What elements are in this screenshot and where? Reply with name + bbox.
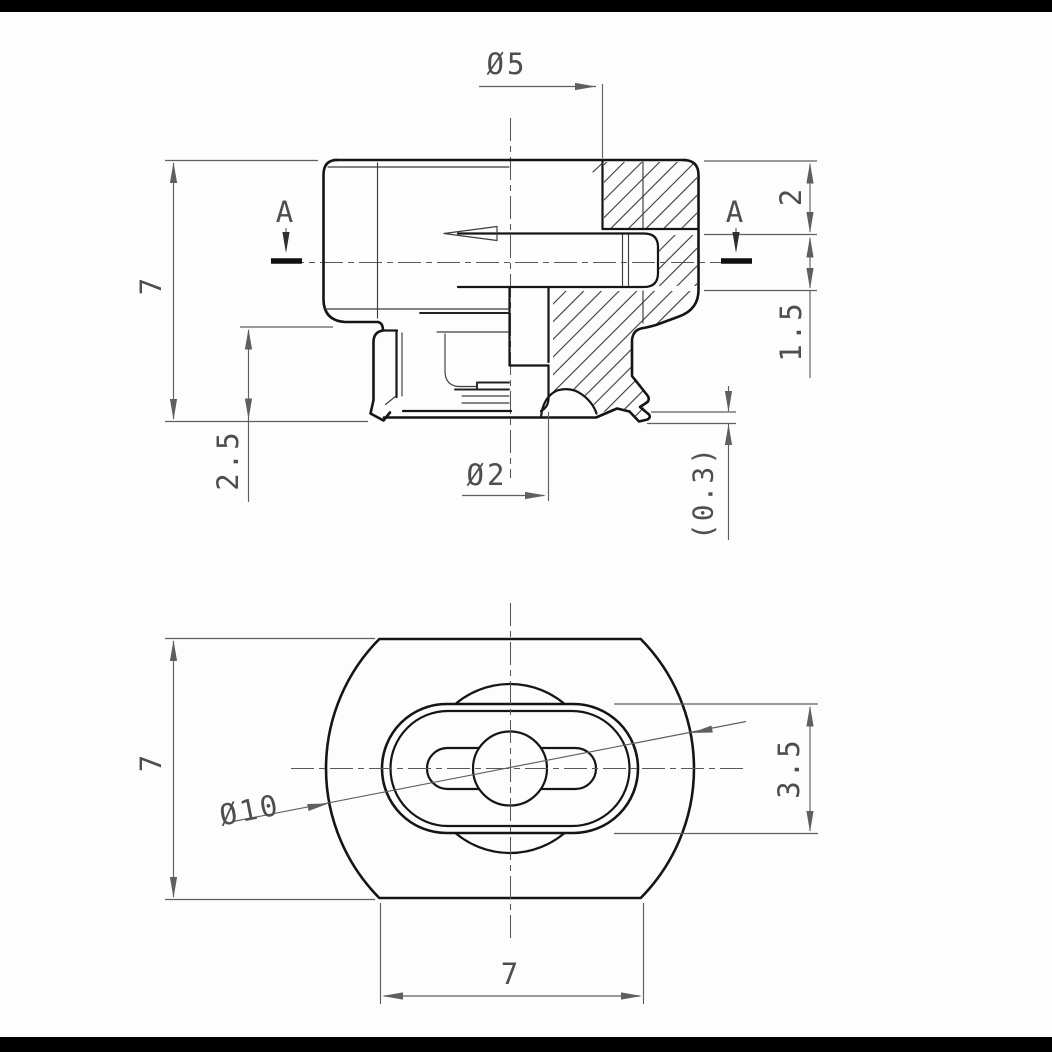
label-dia2: Ø2 [467,458,508,492]
label-0-3: (0.3) [687,446,720,540]
bottom-frame-bar [0,1037,1052,1052]
label-dia5: Ø5 [487,47,528,81]
label-width7-bottom: 7 [501,957,521,991]
drawing-svg: A A Ø5 7 2.5 2 [0,0,1052,1052]
label-2: 2 [774,186,808,206]
label-2-5: 2.5 [211,429,245,490]
section-label-a-left: A [276,195,296,229]
label-1-5: 1.5 [774,300,808,361]
label-3-5: 3.5 [772,737,806,798]
section-label-a-right: A [726,195,746,229]
label-height7-front: 7 [134,275,168,295]
label-height7-bottom: 7 [134,752,168,772]
top-frame-bar [0,0,1052,12]
